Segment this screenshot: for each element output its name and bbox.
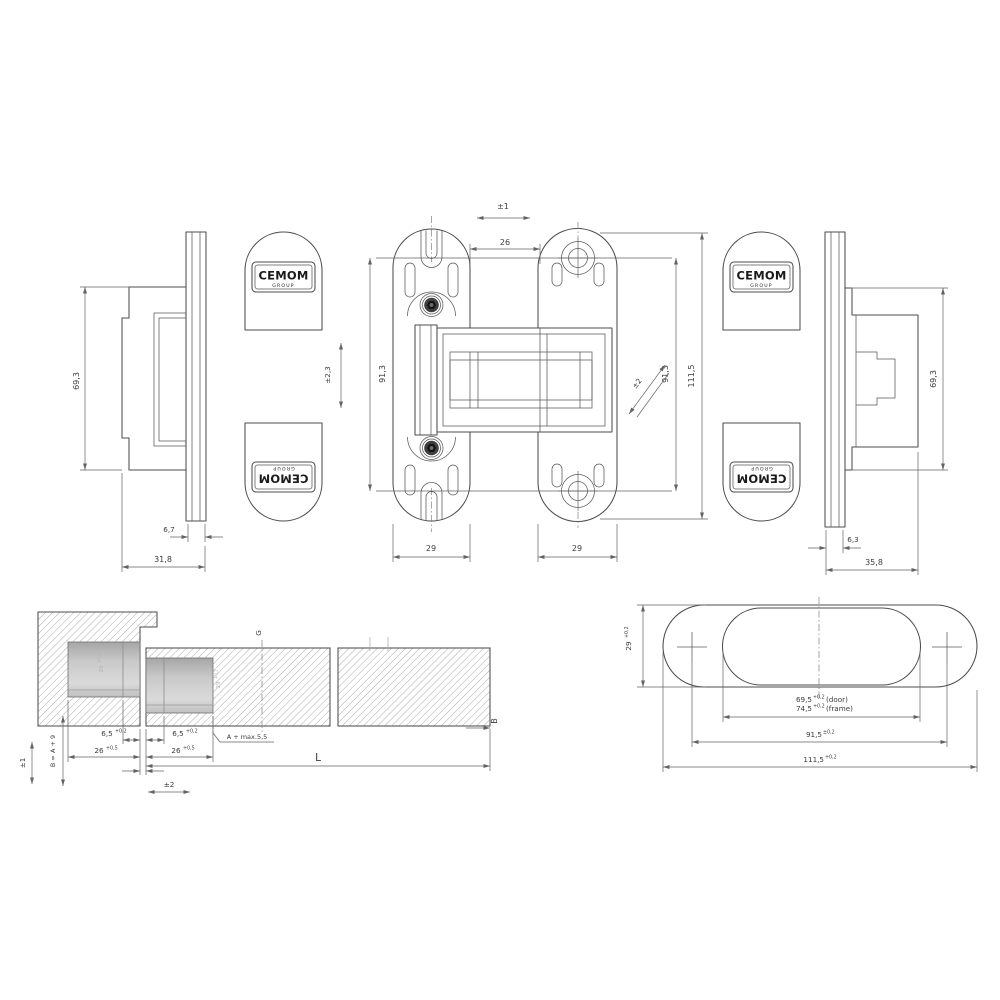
svg-text:26: 26: [94, 746, 104, 755]
dim-section-adjust-vertical: ±1: [18, 758, 27, 769]
svg-text:±0,2: ±0,2: [823, 730, 835, 736]
dim-front-adjust-vertical: ±2,3: [323, 366, 332, 383]
hinge-technical-drawing-page: 69,3 6,7 31,8 CEMOM GROUP CEMOM GROUP: [0, 0, 1000, 1000]
dim-side-left-plate: 6,7: [163, 525, 174, 534]
svg-text:(frame): (frame): [826, 704, 853, 713]
dim-section-adjust-horizontal: ±2: [164, 780, 175, 789]
svg-text:+0,2: +0,2: [825, 755, 837, 761]
brand-name: CEMOM: [259, 269, 309, 283]
dim-front-span-left: 91,3: [378, 365, 387, 383]
svg-text:111,5: 111,5: [803, 755, 824, 764]
svg-text:+0,2: +0,2: [115, 729, 127, 735]
door-section-b: [338, 648, 490, 726]
svg-text:91,5: 91,5: [806, 730, 822, 739]
svg-text:29: 29: [99, 665, 105, 672]
dim-side-right-plate: 6,3: [847, 535, 858, 544]
svg-text:+0,2: +0,2: [624, 626, 630, 638]
svg-text:26: 26: [171, 746, 181, 755]
page-background: [0, 0, 1000, 1000]
dim-door-edge: B: [490, 718, 499, 724]
dim-front-plate-width-left: 29: [426, 544, 436, 553]
dim-side-left-height: 69,3: [72, 372, 81, 390]
svg-text:74,5: 74,5: [796, 704, 812, 713]
dim-pocket-depth-note: A + max.5,5: [227, 733, 268, 741]
svg-text:(door): (door): [826, 695, 848, 704]
svg-text:6,5: 6,5: [172, 729, 183, 738]
brand-sub: GROUP: [750, 465, 773, 471]
svg-text:+0,2: +0,2: [813, 695, 825, 701]
svg-text:29: 29: [216, 681, 222, 688]
brand-sub: GROUP: [272, 283, 295, 289]
svg-text:69,5: 69,5: [796, 695, 812, 704]
dim-side-right-depth: 35,8: [865, 558, 883, 567]
svg-text:+0,5: +0,5: [183, 746, 195, 752]
dim-depth-formula: B = A + 9: [49, 735, 57, 767]
brand-name: CEMOM: [737, 472, 787, 486]
dim-front-adjust-horizontal: ±1: [497, 202, 509, 211]
hinge-technical-drawing: 69,3 6,7 31,8 CEMOM GROUP CEMOM GROUP: [0, 0, 1000, 1000]
axis-label: G: [254, 630, 263, 636]
svg-text:6,5: 6,5: [101, 729, 112, 738]
brand-name: CEMOM: [737, 269, 787, 283]
svg-text:+0,2: +0,2: [813, 704, 825, 710]
dim-door-length: L: [315, 752, 321, 764]
svg-text:+0,2: +0,2: [186, 729, 198, 735]
dim-side-right-height: 69,3: [929, 370, 938, 388]
brand-name: CEMOM: [259, 472, 309, 486]
svg-text:+0,2: +0,2: [97, 653, 102, 663]
brand-sub: GROUP: [750, 283, 773, 289]
brand-sub: GROUP: [272, 465, 295, 471]
dim-front-plate-width-right: 29: [572, 544, 582, 553]
svg-text:+0,5: +0,5: [106, 746, 118, 752]
dim-side-left-depth: 31,8: [154, 555, 172, 564]
svg-text:+0,2: +0,2: [214, 669, 219, 679]
dim-front-gap: 26: [500, 238, 510, 247]
hinge-linkage: [415, 325, 612, 435]
dim-front-total-height: 111,5: [687, 365, 696, 388]
svg-text:29: 29: [624, 641, 633, 651]
